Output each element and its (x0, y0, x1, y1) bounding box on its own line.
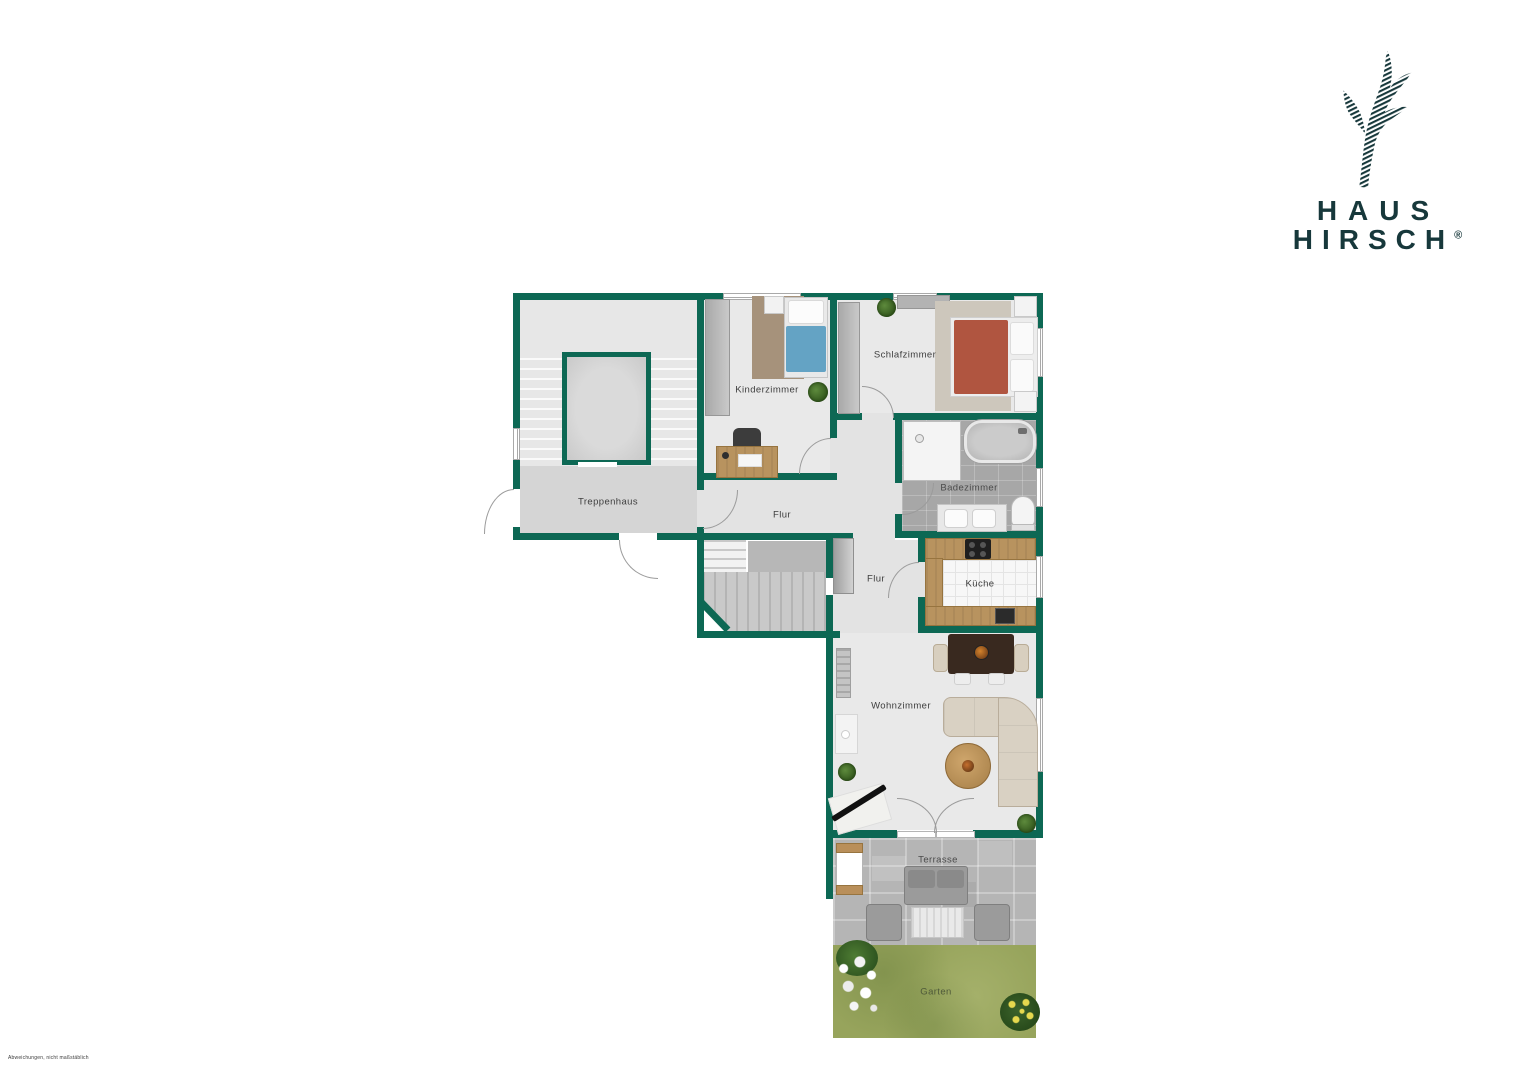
flur-passage (853, 533, 895, 540)
stove-burner (969, 542, 975, 548)
sink (944, 509, 968, 528)
wall-stairs-right (826, 533, 833, 578)
bathtub-faucet (1018, 428, 1027, 434)
wall-stairs-bottom (697, 631, 840, 638)
stove-burner (980, 551, 986, 557)
kitchen-sink (995, 608, 1015, 624)
window (513, 428, 520, 460)
sofa-arm-top (943, 697, 1005, 737)
toilet (1011, 496, 1035, 526)
nightstand (764, 296, 784, 314)
room-label-treppenhaus: Treppenhaus (578, 497, 638, 508)
sofa-arm-right (998, 697, 1038, 807)
entry-door-gap (513, 489, 520, 527)
room-label-badezimmer: Badezimmer (940, 483, 997, 494)
door-swing (484, 489, 514, 534)
room-label-terrasse: Terrasse (918, 855, 958, 866)
room-label-wohnzimmer: Wohnzimmer (871, 701, 931, 712)
brand-name-line2: HIRSCH® (1273, 224, 1473, 256)
sun-lounger-head (836, 843, 863, 853)
nightstand (1014, 391, 1037, 412)
wardrobe (705, 299, 730, 416)
paving-tile-light (978, 841, 1012, 866)
registered-mark: ® (1454, 230, 1462, 242)
door-swing (619, 540, 658, 579)
desk-paper (738, 454, 762, 467)
shower (903, 421, 961, 481)
plant-icon (877, 298, 896, 317)
sink (972, 509, 996, 528)
nightstand (1014, 296, 1037, 317)
room-label-flur-oben: Flur (773, 510, 791, 521)
stair-shaft (562, 352, 651, 465)
wall-kueche-bottom (918, 626, 1043, 633)
treppenhaus-stairs-left (520, 358, 565, 464)
stove-burner (980, 542, 986, 548)
bathtub (964, 420, 1036, 463)
stove-burner (969, 551, 975, 557)
kinderzimmer-door-gap (830, 438, 837, 473)
floorplan-page: HAUS HIRSCH® (0, 0, 1528, 1080)
stair-shaft-opening (578, 462, 617, 467)
white-flower-bush (832, 952, 890, 1018)
flur-floor-bath (837, 420, 895, 480)
treppenhaus-door-gap (619, 533, 657, 540)
room-label-garten: Garten (920, 987, 951, 998)
dining-chair (988, 673, 1005, 685)
window (1036, 556, 1043, 598)
brand-name-line1: HAUS (1273, 195, 1473, 227)
wall-stairs-left (697, 533, 704, 638)
bed-blanket-red (954, 320, 1008, 394)
badezimmer-door-gap (895, 483, 902, 514)
sofa-cushion (937, 870, 964, 888)
wardrobe (833, 538, 854, 594)
dining-chair (933, 644, 948, 672)
pillow (788, 300, 824, 324)
sofa-cushion (908, 870, 935, 888)
dining-chair (954, 673, 971, 685)
desk-lamp (722, 452, 729, 459)
window (1036, 468, 1043, 507)
fruit-bowl (974, 645, 989, 660)
kueche-door-gap (918, 562, 925, 597)
bed-blanket-blue (786, 326, 826, 372)
room-label-kueche: Küche (966, 579, 995, 590)
plant-icon (808, 382, 828, 402)
kitchen-counter (925, 558, 943, 608)
room-label-schlafzimmer: Schlafzimmer (874, 350, 936, 361)
disclaimer-text: Abweichungen, nicht maßstäblich (8, 1055, 89, 1061)
radiator (836, 648, 851, 698)
wall-treppenhaus-bottom (513, 533, 853, 540)
stairs-down-landing (748, 541, 826, 572)
wall-bad-left (895, 413, 902, 538)
plant-icon (838, 763, 856, 781)
dining-chair (1014, 644, 1029, 672)
wardrobe (838, 302, 860, 414)
pillow (1010, 322, 1034, 355)
table-bowl (962, 760, 974, 772)
outdoor-table (911, 907, 964, 938)
side-table-decor (841, 730, 850, 739)
wall-terrasse-left (826, 838, 833, 899)
brand-antler-icon (1316, 42, 1434, 192)
outdoor-armchair (974, 904, 1010, 941)
pillow (1010, 359, 1034, 392)
room-label-flur-mitte: Flur (867, 574, 885, 585)
wall-bad-kueche-divider (895, 531, 1043, 538)
outdoor-armchair (866, 904, 902, 941)
paving-tile-light (872, 856, 906, 881)
yellow-flower-bush (1000, 993, 1040, 1031)
kitchen-counter (925, 606, 1036, 626)
plant-icon (1017, 814, 1036, 833)
room-label-kinderzimmer: Kinderzimmer (735, 385, 798, 396)
treppenhaus-stairs-right (651, 358, 697, 464)
toilet-tank (1011, 524, 1035, 531)
brand-name-line2-text: HIRSCH (1293, 224, 1454, 255)
sun-lounger-foot (836, 885, 863, 895)
shower-drain (915, 434, 924, 443)
